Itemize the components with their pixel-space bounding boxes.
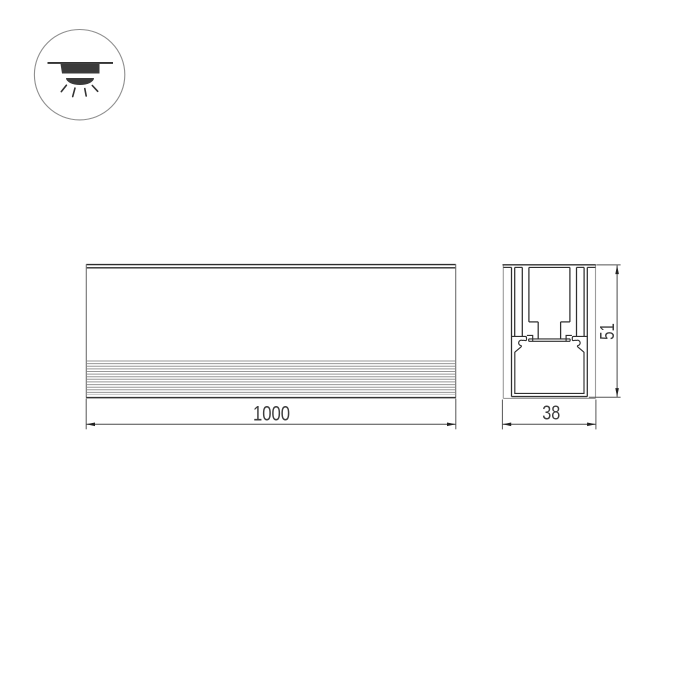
svg-text:38: 38 bbox=[542, 403, 560, 425]
svg-text:1000: 1000 bbox=[253, 403, 290, 426]
svg-text:51: 51 bbox=[597, 323, 619, 340]
